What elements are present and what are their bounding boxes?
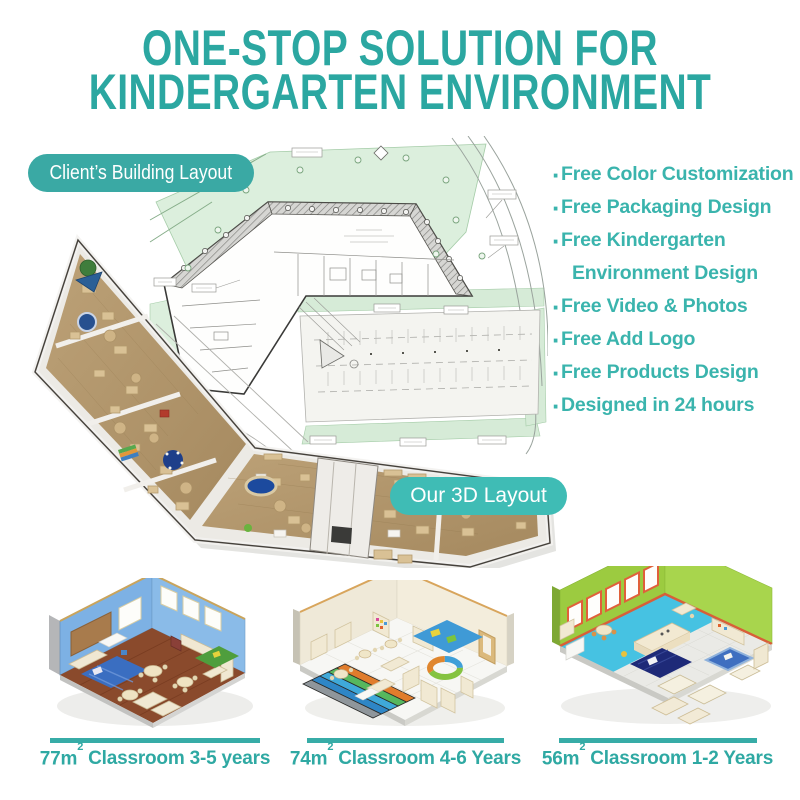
page-title: ONE-STOP SOLUTION FOR KINDERGARTEN ENVIR… (0, 26, 800, 114)
feature-text: Environment Design (572, 262, 758, 285)
bullet-dot: · (552, 396, 561, 416)
caption-area: 77m (40, 748, 77, 769)
ball-pool (246, 477, 276, 495)
feature-list: ·Free Color Customization ·Free Packagin… (552, 158, 798, 422)
caption-label: Classroom 1-2 Years (590, 748, 773, 769)
client-building-layout-label: Client’s Building Layout (50, 162, 233, 185)
bullet-dot: · (552, 297, 561, 317)
bullet-dot: · (552, 231, 561, 251)
classroom-caption-3: 56m2Classroom 1-2 Years (540, 738, 775, 770)
round-table (596, 625, 612, 635)
feature-text: Free Color Customization (561, 163, 793, 186)
client-building-layout-badge: Client’s Building Layout (28, 154, 254, 192)
classroom-render-1-2-years (540, 566, 790, 738)
bullet-dot: · (552, 198, 561, 218)
feature-item: ·Free Products Design (552, 356, 798, 389)
classroom-render-4-6-years (285, 580, 520, 740)
feature-item: ·Free Kindergarten (552, 224, 798, 257)
caption-label: Classroom 3-5 years (88, 748, 270, 769)
poster: ONE-STOP SOLUTION FOR KINDERGARTEN ENVIR… (0, 0, 800, 800)
isometric-3d-layout-image (18, 228, 558, 568)
feature-item: ·Free Video & Photos (552, 290, 798, 323)
caption-superscript: 2 (77, 741, 83, 753)
feature-text: Free Products Design (561, 361, 759, 384)
caption-superscript: 2 (327, 741, 333, 753)
green-ball (244, 524, 252, 532)
caption-area: 56m (542, 748, 579, 769)
red-cabinet (160, 410, 169, 417)
caption-bar (559, 738, 757, 743)
feature-text: Free Kindergarten (561, 229, 726, 252)
feature-item-continuation: Environment Design (552, 257, 798, 290)
title-line-2: KINDERGARTEN ENVIRONMENT (88, 70, 712, 114)
classroom-caption-1: 77m2Classroom 3-5 years (30, 738, 280, 770)
feature-item: ·Free Add Logo (552, 323, 798, 356)
caption-text: 77m2Classroom 3-5 years (30, 748, 280, 770)
our-3d-layout-badge: Our 3D Layout (390, 477, 567, 515)
feature-item: ·Designed in 24 hours (552, 389, 798, 422)
feature-item: ·Free Color Customization (552, 158, 798, 191)
caption-text: 74m2Classroom 4-6 Years (288, 748, 523, 770)
caption-bar (307, 738, 504, 743)
feature-text: Free Add Logo (561, 328, 695, 351)
caption-text: 56m2Classroom 1-2 Years (540, 748, 775, 770)
feature-text: Free Packaging Design (561, 196, 771, 219)
plant (80, 260, 96, 276)
feature-text: Free Video & Photos (561, 295, 748, 318)
caption-superscript: 2 (579, 741, 585, 753)
round-rug (78, 313, 96, 331)
classroom-caption-2: 74m2Classroom 4-6 Years (288, 738, 523, 770)
bullet-dot: · (552, 330, 561, 350)
our-3d-layout-label: Our 3D Layout (410, 484, 547, 508)
feature-item: ·Free Packaging Design (552, 191, 798, 224)
bullet-dot: · (552, 363, 561, 383)
classroom-render-3-5-years (35, 578, 265, 738)
caption-label: Classroom 4-6 Years (338, 748, 521, 769)
caption-area: 74m (290, 748, 327, 769)
bullet-dot: · (552, 165, 561, 185)
feature-text: Designed in 24 hours (561, 394, 754, 417)
